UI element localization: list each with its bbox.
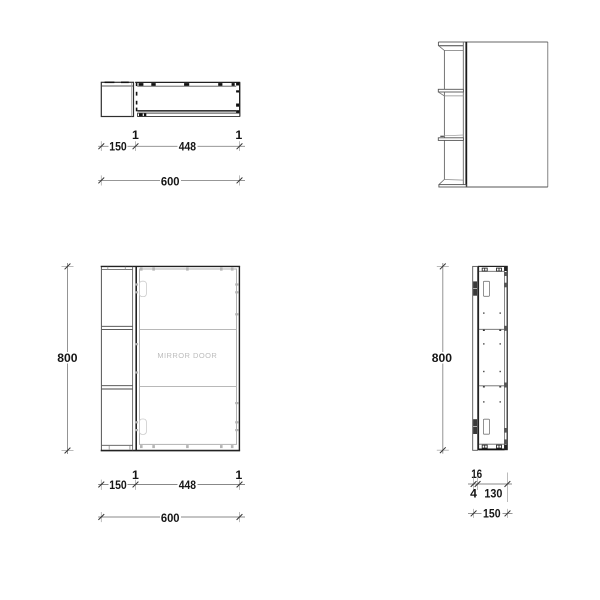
svg-text:150: 150: [109, 140, 127, 154]
svg-text:1: 1: [235, 468, 242, 482]
svg-text:16: 16: [471, 467, 482, 481]
svg-text:600: 600: [161, 511, 180, 525]
svg-text:150: 150: [483, 506, 501, 520]
svg-text:1: 1: [235, 128, 242, 142]
svg-text:800: 800: [57, 351, 77, 365]
svg-text:1: 1: [132, 128, 139, 142]
svg-text:4: 4: [470, 487, 477, 501]
svg-text:448: 448: [179, 140, 196, 154]
svg-text:130: 130: [484, 487, 502, 501]
svg-text:800: 800: [432, 351, 452, 365]
svg-text:600: 600: [161, 174, 180, 188]
svg-text:1: 1: [132, 468, 139, 482]
svg-text:448: 448: [179, 478, 196, 492]
svg-text:150: 150: [109, 478, 127, 492]
svg-text:MIRROR DOOR: MIRROR DOOR: [157, 351, 217, 360]
